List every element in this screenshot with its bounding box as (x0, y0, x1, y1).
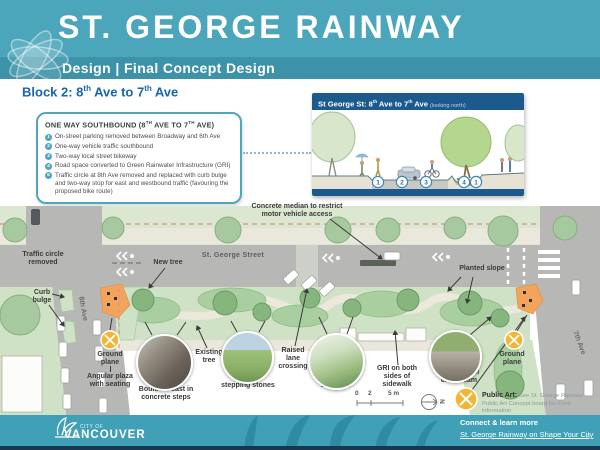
page-subtitle: Design | Final Concept Design (62, 57, 275, 79)
ground-plane-icon-right (505, 331, 523, 349)
bullet-number-badge: 5 (45, 172, 52, 179)
label-concrete-median: Concrete median to restrict motor vehicl… (234, 203, 360, 219)
label-traffic-circle-removed: Traffic circle removed (10, 251, 76, 267)
bullet-number-badge: 1 (45, 134, 52, 141)
dotted-connector (243, 152, 311, 154)
svg-text:1: 1 (376, 179, 380, 186)
inset-subtitle: (looking north) (430, 103, 466, 109)
right-people (500, 157, 512, 172)
list-item: 5Traffic circle at 8th Ave removed and r… (45, 172, 233, 196)
oneway-info-box: ONE WAY SOUTHBOUND (8TH AVE TO 7TH AVE) … (36, 112, 242, 204)
svg-text:2: 2 (400, 179, 404, 186)
public-art-title: Public Art: (482, 392, 517, 399)
scale-five: 5 m (388, 390, 399, 397)
inset-title: St George St: 8th Ave to 7th Ave(looking… (312, 93, 524, 110)
list-item: 1On-street parking removed between Broad… (45, 133, 233, 141)
list-item: 3Two-way local street bikeway (45, 153, 233, 161)
photo-corten-check-dam (429, 330, 482, 383)
inset-footer-bar (312, 189, 524, 196)
bottom-navy-strip (0, 446, 600, 450)
photo-boulders-concrete-steps (136, 334, 193, 391)
info-box-title: ONE WAY SOUTHBOUND (8TH AVE TO 7TH AVE) (45, 120, 233, 129)
cyclist (425, 160, 439, 177)
label-new-tree: New tree (148, 259, 188, 267)
bullet-text: One-way vehicle traffic southbound (55, 143, 153, 151)
bullet-text: Traffic circle at 8th Ave removed and re… (55, 172, 233, 196)
bullet-number-badge: 4 (45, 163, 52, 170)
public-art-note: Public Art: See St. George Rainway Publi… (482, 391, 594, 416)
umbrella-person (356, 154, 368, 176)
bullet-text: On-street parking removed between Broadw… (55, 133, 220, 141)
page-number: 8 (586, 434, 590, 441)
connector-line (110, 366, 111, 372)
svg-text:4: 4 (462, 179, 466, 186)
photo-boulders (308, 333, 365, 390)
concrete-median (360, 260, 396, 266)
far-right-tree (505, 125, 524, 161)
right-tree (441, 117, 491, 180)
scale-two: 2 (368, 390, 372, 397)
list-item: 4Road space converted to Green Rainwater… (45, 162, 233, 170)
north-label: N (438, 399, 445, 404)
page-title: ST. GEORGE RAINWAY (58, 9, 465, 46)
north-arrow-icon (422, 395, 438, 410)
bullet-text: Two-way local street bikeway (55, 153, 137, 161)
label-curb-bulge: Curb bulge (22, 289, 62, 305)
ground-plane-icon-left (101, 331, 119, 349)
photo-boulder-stepping-stones (221, 331, 274, 384)
shape-your-city-link[interactable]: St. George Rainway on Shape Your City (460, 430, 593, 439)
svg-text:3: 3 (424, 179, 428, 186)
cross-section-drawing: 1 2 3 4 1 (312, 110, 524, 189)
label-planted-slope: Planted slope (452, 265, 512, 273)
connect-learn-more: Connect & learn more (460, 418, 538, 427)
svg-text:1: 1 (474, 179, 478, 186)
pedestrian (376, 158, 380, 176)
label-ground-plane-left: Ground plane (91, 351, 129, 367)
dark-car (31, 209, 40, 225)
list-item: 2One-way vehicle traffic southbound (45, 143, 233, 151)
bullet-text: Road space converted to Green Rainwater … (55, 162, 230, 170)
slide: ST. GEORGE RAINWAY Design | Final Concep… (0, 0, 600, 450)
label-st-george-street: St. George Street (198, 252, 268, 260)
cross-section-inset: St George St: 8th Ave to 7th Ave(looking… (312, 93, 524, 196)
bullet-number-badge: 3 (45, 153, 52, 160)
scale-bar (357, 400, 403, 406)
block-title: Block 2: 8th Ave to 7th Ave (22, 84, 178, 99)
scale-zero: 0 (355, 390, 359, 397)
label-gri-sidewalk: GRI on both sides of sidewalk (370, 365, 424, 388)
left-tree (312, 112, 355, 176)
label-ground-plane-right: Ground plane (492, 351, 532, 367)
logo-vancouver: VANCOUVER (64, 429, 146, 441)
bullet-number-badge: 2 (45, 143, 52, 150)
public-art-icon (455, 388, 477, 410)
